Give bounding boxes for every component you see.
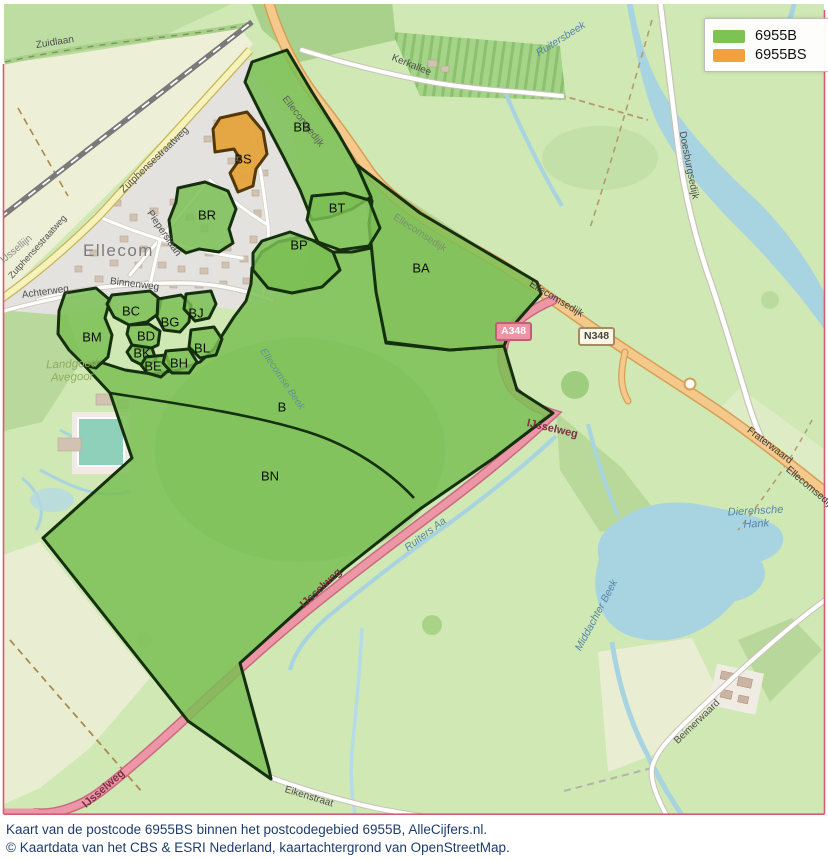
legend-label: 6955B xyxy=(755,28,797,44)
legend-item-6955B: 6955B xyxy=(713,28,827,44)
road-shield-a348: A348 xyxy=(495,322,532,341)
polygon-BT xyxy=(307,193,380,250)
caption-line-1: Kaart van de postcode 6955BS binnen het … xyxy=(6,821,828,839)
road-shield-n348: N348 xyxy=(578,327,615,346)
legend-item-6955BS: 6955BS xyxy=(713,47,827,63)
legend-swatch-green xyxy=(713,30,745,43)
basemap xyxy=(0,0,828,818)
caption: Kaart van de postcode 6955BS binnen het … xyxy=(0,818,828,861)
legend: 6955B 6955BS xyxy=(704,18,828,72)
polygon-BH xyxy=(163,349,197,373)
legend-swatch-orange xyxy=(713,49,745,62)
map-screenshot: Zuidlaan Kerkallee Zutphensestraatweg Zu… xyxy=(0,0,828,861)
map-canvas: Zuidlaan Kerkallee Zutphensestraatweg Zu… xyxy=(0,0,828,818)
polygon-BR xyxy=(169,182,236,253)
polygon-BL xyxy=(189,327,222,358)
legend-label: 6955BS xyxy=(755,47,807,63)
caption-line-2: © Kaartdata van het CBS & ESRI Nederland… xyxy=(6,839,828,857)
